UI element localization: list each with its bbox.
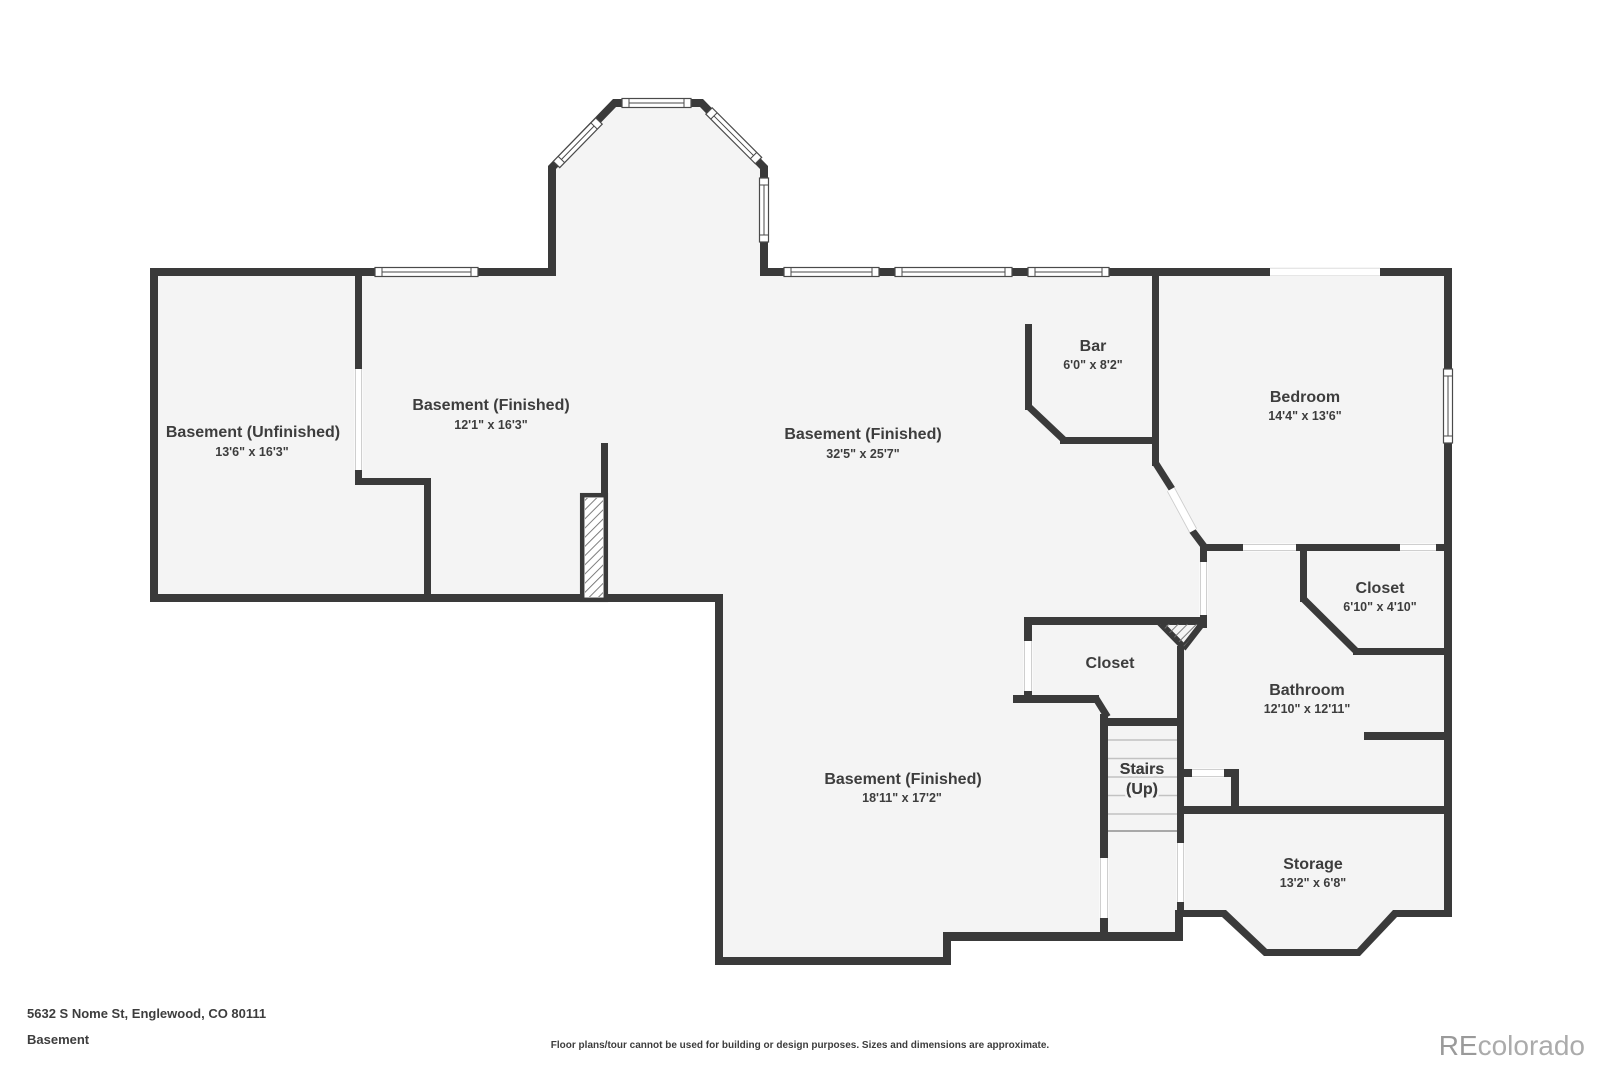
svg-text:Basement (Finished): Basement (Finished) <box>784 426 941 443</box>
svg-text:REcolorado: REcolorado <box>1439 1030 1585 1061</box>
svg-text:14'4" x 13'6": 14'4" x 13'6" <box>1268 409 1341 423</box>
svg-text:32'5" x 25'7": 32'5" x 25'7" <box>826 447 899 461</box>
svg-text:Basement (Unfinished): Basement (Unfinished) <box>166 424 340 441</box>
svg-text:5632 S Nome St, Englewood, CO: 5632 S Nome St, Englewood, CO 80111 <box>27 1006 266 1021</box>
svg-text:18'11" x 17'2": 18'11" x 17'2" <box>862 791 942 805</box>
svg-text:Bathroom: Bathroom <box>1269 682 1345 699</box>
svg-text:Basement (Finished): Basement (Finished) <box>412 397 569 414</box>
svg-text:13'6" x 16'3": 13'6" x 16'3" <box>215 445 288 459</box>
svg-text:Basement (Finished): Basement (Finished) <box>824 771 981 788</box>
svg-text:13'2" x 6'8": 13'2" x 6'8" <box>1280 876 1347 890</box>
svg-text:Closet: Closet <box>1086 655 1136 672</box>
svg-text:(Up): (Up) <box>1126 781 1158 798</box>
svg-text:12'10" x 12'11": 12'10" x 12'11" <box>1264 702 1351 716</box>
svg-text:Stairs: Stairs <box>1120 761 1165 778</box>
svg-text:Bar: Bar <box>1080 338 1107 355</box>
svg-text:12'1" x 16'3": 12'1" x 16'3" <box>454 418 527 432</box>
svg-text:Floor plans/tour cannot be use: Floor plans/tour cannot be used for buil… <box>551 1040 1050 1051</box>
svg-text:Closet: Closet <box>1356 580 1406 597</box>
svg-text:Basement: Basement <box>27 1032 90 1047</box>
svg-text:6'10" x 4'10": 6'10" x 4'10" <box>1343 600 1416 614</box>
svg-text:6'0" x 8'2": 6'0" x 8'2" <box>1063 358 1123 372</box>
svg-text:Bedroom: Bedroom <box>1270 389 1340 406</box>
svg-text:Storage: Storage <box>1283 856 1343 873</box>
